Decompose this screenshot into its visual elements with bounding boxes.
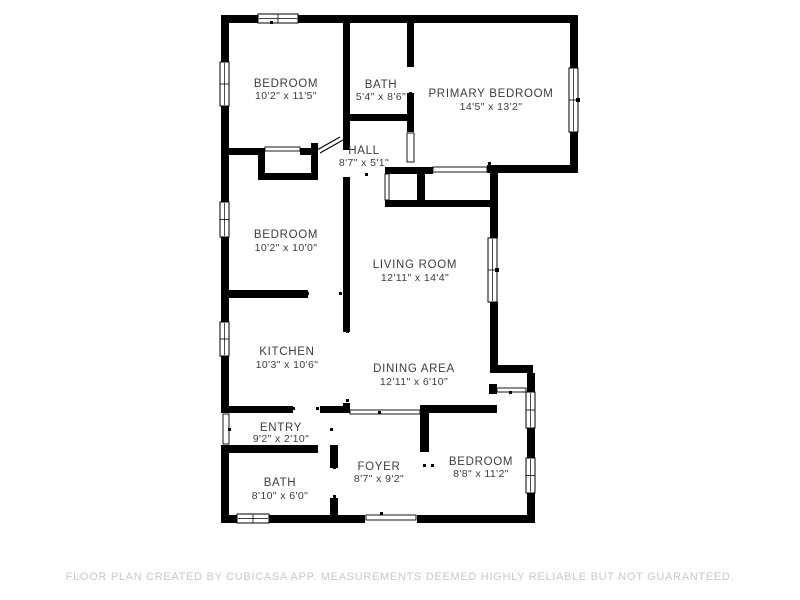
wall-segment: [343, 114, 414, 121]
window-mid-tick: [495, 268, 499, 272]
room-name-kitchen: KITCHEN: [259, 346, 314, 358]
room-dims-bath-bottom: 8'10" x 6'0": [252, 490, 309, 502]
wall-segment: [385, 200, 497, 207]
room-dims-bedroom-bottom-right: 8'8" x 11'2": [453, 468, 509, 480]
dimension-tick: [346, 330, 349, 333]
door-opening: [265, 147, 300, 151]
wall-segment: [487, 165, 578, 173]
room-name-bedroom-mid-left: BEDROOM: [254, 229, 318, 241]
room-dims-bedroom-top-left: 10'2" x 11'5": [255, 90, 317, 102]
dimension-tick: [330, 428, 333, 431]
room-name-bedroom-bottom-right: BEDROOM: [449, 456, 513, 468]
wall-segment: [221, 445, 229, 523]
wall-segment: [221, 406, 293, 413]
door-opening: [433, 167, 487, 172]
dimension-tick: [339, 292, 342, 295]
door-opening: [407, 133, 414, 162]
room-dims-dining-area: 12'11" x 6'10": [380, 376, 448, 388]
wall-segment: [490, 302, 498, 365]
room-name-foyer: FOYER: [357, 461, 400, 473]
wall-segment: [221, 515, 237, 523]
wall-segment: [343, 177, 350, 332]
wall-segment: [221, 356, 229, 413]
room-name-primary-bedroom: PRIMARY BEDROOM: [428, 88, 553, 100]
dimension-tick: [487, 20, 490, 23]
door-opening: [350, 410, 420, 414]
room-dims-primary-bedroom: 14'5" x 13'2": [460, 101, 523, 113]
dimension-tick: [378, 411, 381, 414]
wall-segment: [407, 93, 414, 132]
room-dims-hall: 8'7" x 5'1": [339, 157, 389, 169]
wall-segment: [527, 428, 535, 458]
dimension-tick: [270, 21, 273, 24]
dimension-tick: [228, 428, 231, 431]
wall-segment: [527, 493, 535, 523]
door-swing-layer: [317, 137, 343, 153]
wall-segment: [417, 515, 535, 523]
dimension-tick: [292, 407, 295, 410]
wall-segment: [385, 167, 433, 174]
wall-segment: [221, 290, 308, 298]
room-dims-living-room: 12'11" x 14'4": [381, 272, 449, 284]
wall-segment: [420, 405, 429, 452]
room-name-bath-bottom: BATH: [264, 477, 297, 489]
window: [258, 14, 298, 23]
wall-segment: [221, 15, 229, 62]
floor-plan-drawing: BEDROOM10'2" x 11'5"BATH5'4" x 8'6"PRIMA…: [0, 0, 800, 600]
room-name-dining-area: DINING AREA: [373, 363, 455, 375]
window: [526, 458, 535, 493]
door-opening: [385, 174, 389, 200]
room-name-bedroom-top-left: BEDROOM: [254, 78, 318, 90]
dimension-tick: [333, 495, 336, 498]
wall-segment: [417, 174, 425, 200]
dimension-tick: [306, 292, 309, 295]
wall-segment: [221, 445, 318, 453]
wall-segment: [527, 373, 535, 392]
door-opening: [366, 515, 416, 520]
window: [220, 322, 229, 356]
window: [488, 238, 499, 302]
wall-segment: [221, 237, 229, 322]
room-dims-kitchen: 10'3" x 10'6": [256, 359, 319, 371]
footer-disclaimer: FLOOR PLAN CREATED BY CUBICASA APP. MEAS…: [0, 571, 800, 583]
wall-segment: [343, 15, 350, 150]
wall-segment: [330, 445, 338, 468]
wall-segment: [490, 365, 533, 373]
window: [220, 62, 229, 106]
window: [220, 202, 229, 237]
dimension-tick: [509, 391, 512, 394]
window: [526, 392, 535, 428]
room-dims-entry: 9'2" x 2'10": [253, 433, 310, 445]
wall-segment: [420, 405, 497, 413]
dimension-tick: [346, 399, 349, 402]
dimension-tick: [488, 162, 491, 165]
wall-segment: [269, 515, 365, 523]
room-dims-bedroom-mid-left: 10'2" x 10'0": [255, 242, 318, 254]
dimension-tick: [333, 466, 336, 469]
room-dims-bath-top: 5'4" x 8'6": [356, 91, 406, 103]
wall-segment: [300, 148, 318, 155]
wall-segment: [489, 384, 497, 394]
dimension-tick: [380, 512, 383, 515]
room-name-hall: HALL: [348, 145, 380, 157]
wall-segment: [258, 173, 318, 180]
wall-segment: [407, 15, 414, 67]
dimension-tick: [423, 464, 426, 467]
wall-segment: [570, 15, 578, 68]
dimension-tick: [365, 173, 368, 176]
window-mid-tick: [576, 98, 580, 102]
dimension-tick: [409, 64, 412, 67]
wall-segment: [570, 132, 578, 173]
wall-segment: [330, 498, 338, 523]
dimension-tick: [316, 407, 319, 410]
room-dims-foyer: 8'7" x 9'2": [354, 473, 404, 485]
dimension-tick: [431, 464, 434, 467]
room-name-living-room: LIVING ROOM: [373, 259, 457, 271]
floor-plan-page: BEDROOM10'2" x 11'5"BATH5'4" x 8'6"PRIMA…: [0, 0, 800, 600]
wall-segment: [320, 406, 350, 413]
room-name-bath-top: BATH: [365, 79, 398, 91]
window: [569, 68, 580, 132]
dimension-tick: [409, 92, 412, 95]
window: [237, 514, 269, 523]
